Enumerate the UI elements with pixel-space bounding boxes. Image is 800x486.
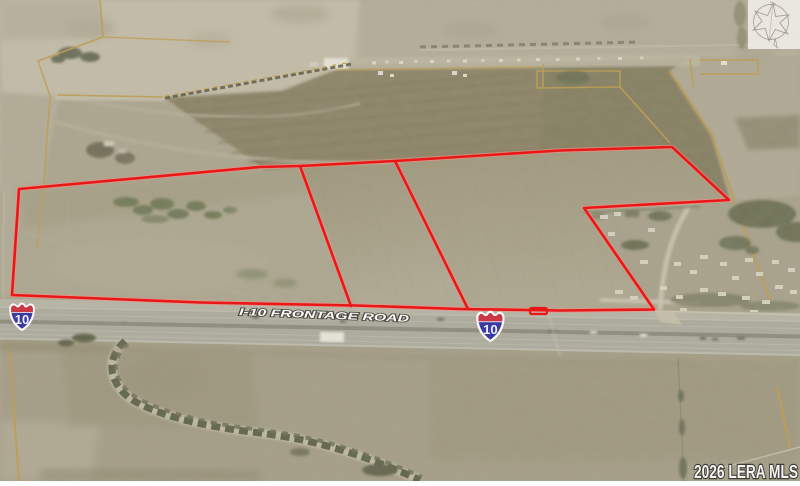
svg-text:10: 10 (15, 312, 29, 327)
svg-text:2026 LERA MLS: 2026 LERA MLS (694, 462, 798, 481)
svg-text:10: 10 (483, 322, 498, 337)
